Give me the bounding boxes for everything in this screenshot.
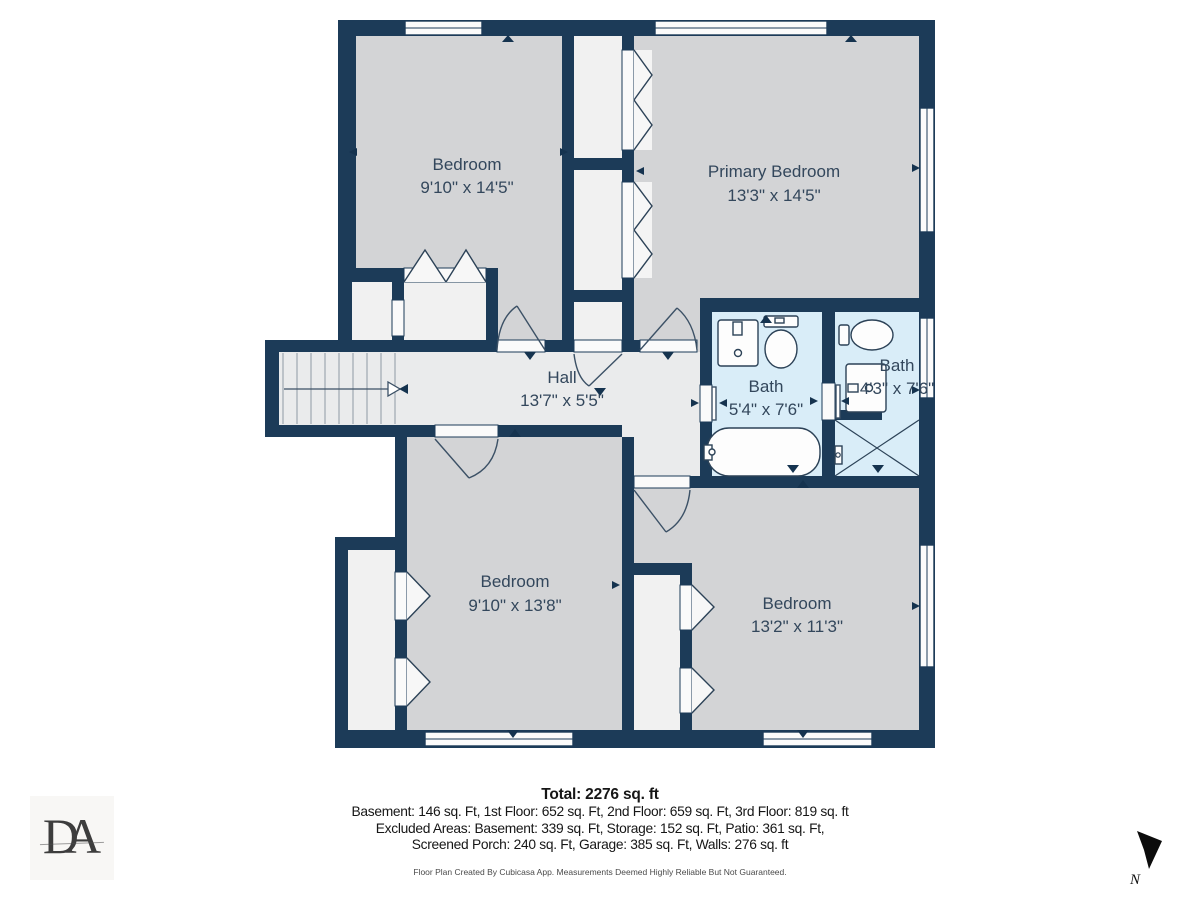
room-label: Bath <box>880 356 915 375</box>
door-opening-closet-ab <box>392 300 404 336</box>
room-label: Bedroom <box>433 155 502 174</box>
closet-br-floor <box>634 575 680 733</box>
bedroom-top-left-floor <box>356 36 562 268</box>
excluded-areas-line: Excluded Areas: Basement: 339 sq. Ft, St… <box>0 821 1200 838</box>
window-top-left <box>405 21 482 35</box>
door-opening-bedroom-br <box>634 476 690 488</box>
door-opening-bedroom-tl <box>497 340 545 352</box>
window-east-primary <box>920 108 934 232</box>
door-opening-bath-center <box>700 385 712 422</box>
closet-column-2-floor <box>574 170 622 290</box>
bifold-opening-br-2 <box>680 668 692 713</box>
toilet-icon <box>764 316 798 368</box>
door-opening-bath-right <box>822 383 835 420</box>
total-area: Total: 2276 sq. ft <box>0 786 1200 804</box>
floor-plan-page: Bedroom 9'10" x 14'5" Primary Bedroom 13… <box>0 0 1200 900</box>
bifold-opening-wing-1 <box>395 572 407 620</box>
area-summary: Total: 2276 sq. ft Basement: 146 sq. Ft,… <box>0 786 1200 877</box>
door-opening-closet3 <box>574 340 622 352</box>
toilet-icon <box>839 320 893 350</box>
room-dims: 9'10" x 13'8" <box>468 596 561 615</box>
floor-plan-canvas: Bedroom 9'10" x 14'5" Primary Bedroom 13… <box>0 0 1200 780</box>
excluded-areas-line2: Screened Porch: 240 sq. Ft, Garage: 385 … <box>0 837 1200 854</box>
room-dims: 13'3" x 14'5" <box>727 186 820 205</box>
closet-wing-floor <box>348 550 395 730</box>
sink-icon <box>718 320 758 366</box>
north-label: N <box>1129 872 1141 888</box>
room-dims: 5'4" x 7'6" <box>729 400 803 419</box>
bathtub-icon <box>704 428 820 476</box>
bifold-opening-col-2 <box>622 182 634 278</box>
window-south-bedroom-bl <box>425 732 573 746</box>
window-top-primary <box>655 21 827 35</box>
window-east-bedroom-br <box>920 545 934 667</box>
window-south-bedroom-br <box>763 732 872 746</box>
agency-logo: DA <box>30 796 114 880</box>
room-dims: 4'3" x 7'6" <box>860 379 934 398</box>
room-dims: 13'2" x 11'3" <box>751 617 843 636</box>
room-dims: 13'7" x 5'5" <box>520 391 604 410</box>
bifold-opening-br-1 <box>680 585 692 630</box>
room-label: Hall <box>547 368 576 387</box>
room-label: Bath <box>749 377 784 396</box>
floor-areas-line: Basement: 146 sq. Ft, 1st Floor: 652 sq.… <box>0 804 1200 821</box>
door-opening-bedroom-bl <box>435 425 498 437</box>
room-label: Bedroom <box>763 594 832 613</box>
north-arrow-icon <box>1137 831 1162 869</box>
room-label: Primary Bedroom <box>708 162 840 181</box>
bifold-opening-col-1 <box>622 50 634 150</box>
logo-monogram: DA <box>43 807 101 865</box>
closet-column-1-floor <box>574 36 622 158</box>
door-opening-primary <box>640 340 697 352</box>
bifold-opening-wing-2 <box>395 658 407 706</box>
compass: N <box>1108 818 1178 888</box>
door-leaf-bath-center <box>712 387 716 420</box>
bedroom-top-left-extension <box>498 268 562 352</box>
room-label: Bedroom <box>481 572 550 591</box>
room-dims: 9'10" x 14'5" <box>420 178 513 197</box>
door-leaf-bath-right <box>836 385 840 418</box>
disclaimer-text: Floor Plan Created By Cubicasa App. Meas… <box>0 867 1200 877</box>
